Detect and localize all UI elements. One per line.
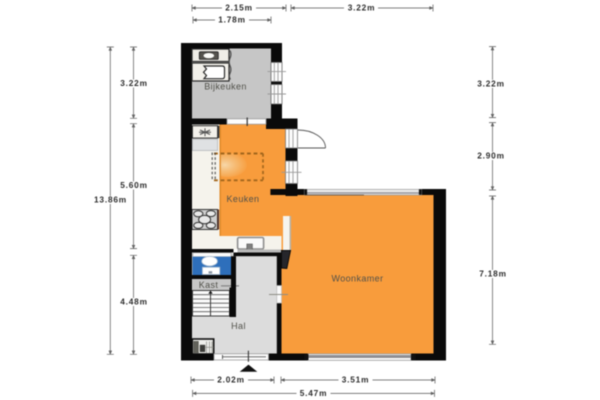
svg-text:2.15m: 2.15m (225, 3, 253, 13)
svg-text:13.86m: 13.86m (94, 195, 127, 205)
svg-text:4.48m: 4.48m (120, 297, 148, 307)
svg-text:Bijkeuken: Bijkeuken (204, 82, 247, 92)
svg-text:3.22m: 3.22m (477, 78, 505, 88)
svg-text:Woonkamer: Woonkamer (332, 274, 384, 284)
svg-text:Hal: Hal (231, 321, 246, 331)
svg-text:3.51m: 3.51m (342, 375, 370, 385)
svg-text:5.47m: 5.47m (300, 388, 328, 398)
svg-text:1.78m: 1.78m (218, 15, 246, 25)
svg-text:Keuken: Keuken (227, 194, 260, 204)
svg-text:7.18m: 7.18m (479, 269, 507, 279)
svg-text:3.22m: 3.22m (348, 3, 376, 13)
svg-text:2.02m: 2.02m (217, 375, 245, 385)
svg-text:3.22m: 3.22m (120, 78, 148, 88)
svg-text:2.90m: 2.90m (477, 151, 505, 161)
svg-text:5.60m: 5.60m (120, 180, 148, 190)
svg-text:Kast: Kast (199, 280, 219, 290)
